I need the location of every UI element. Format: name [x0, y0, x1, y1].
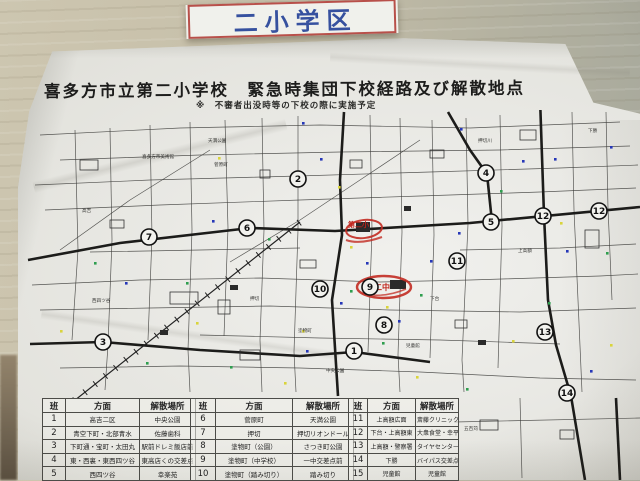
table-cell: 斎藤クリニック: [416, 413, 459, 427]
dismissal-table-groups-11-15: 班方面解散場所11上高額広面斎藤クリニック12下台・上高額東大衆食堂・幸平食堂1…: [348, 398, 459, 481]
table-cell: 児童館: [416, 467, 459, 481]
area-label: 塗物町: [298, 327, 312, 334]
table-header: 解散場所: [140, 399, 196, 413]
area-label: 下勝: [588, 127, 598, 134]
svg-text:1: 1: [351, 347, 357, 357]
area-label: 天満公園: [208, 137, 227, 144]
route-point-2: 2: [290, 171, 306, 187]
svg-text:7: 7: [146, 233, 152, 243]
table-header: 方面: [66, 399, 140, 413]
table-cell: 高吉二区: [66, 413, 140, 427]
route-point-10: 10: [312, 281, 328, 297]
table-cell: 下勝: [368, 453, 416, 467]
area-label: 押切: [250, 295, 260, 302]
svg-text:6: 6: [244, 224, 250, 234]
area-label: 五百苅: [464, 425, 478, 432]
route-point-8: 8: [376, 317, 392, 333]
area-label: 喜多方市美術館: [142, 153, 175, 160]
table-row: 2青空下町・北部青水佐藤歯科: [43, 426, 196, 440]
table-cell: 塗物町（踏み切り）: [216, 467, 293, 481]
table-cell: 13: [349, 440, 368, 454]
route-point-12: 12: [591, 203, 607, 219]
svg-text:14: 14: [561, 389, 574, 399]
svg-text:2: 2: [295, 175, 301, 185]
table-cell: 下町通・宝町・太田丸: [66, 440, 140, 454]
svg-text:12: 12: [537, 212, 550, 222]
route-point-12: 12: [535, 208, 551, 224]
route-point-6: 6: [239, 220, 255, 236]
school-red-label: 第二小: [348, 220, 369, 229]
table-cell: 下台・上高額東: [368, 426, 416, 440]
table-cell: 15: [349, 467, 368, 481]
table-cell: 9: [191, 453, 216, 467]
table-cell: 大衆食堂・幸平食堂: [416, 426, 459, 440]
route-point-1: 1: [346, 343, 362, 359]
table-row: 14下勝バイパス交差点: [349, 453, 459, 467]
table-cell: 6: [191, 413, 216, 427]
route-point-5: 5: [483, 214, 499, 230]
area-label: 中央公園: [326, 367, 345, 374]
table-cell: 児童館: [368, 467, 416, 481]
table-row: 4東・西裏・東西四ツ谷東高店くの交差点: [43, 453, 196, 467]
table-row: 11上高額広面斎藤クリニック: [349, 413, 459, 427]
area-label: 高吉: [82, 207, 92, 214]
table-cell: 7: [191, 426, 216, 440]
table-row: 8塗物町（公園）さつき町公園: [191, 440, 354, 454]
route-circles-group: 123456789101112121314: [95, 165, 607, 401]
route-point-9: 9: [362, 279, 378, 295]
table-cell: 押切: [216, 426, 293, 440]
table-cell: タイヤセンター: [416, 440, 459, 454]
area-label: 西四ツ谷: [92, 297, 111, 304]
table-cell: 上高額・警察署: [368, 440, 416, 454]
table-cell: 8: [191, 440, 216, 454]
area-label: 菅原町: [214, 161, 228, 168]
table-row: 9塗物町（中学校）一中交差点前: [191, 453, 354, 467]
table-cell: 東・西裏・東西四ツ谷: [66, 453, 140, 467]
table-cell: 天満公園: [293, 413, 354, 427]
table-cell: 菅原町: [216, 413, 293, 427]
route-point-13: 13: [537, 324, 553, 340]
table-row: 13上高額・警察署タイヤセンター: [349, 440, 459, 454]
table-row: 12下台・上高額東大衆食堂・幸平食堂: [349, 426, 459, 440]
table-row: 6菅原町天満公園: [191, 413, 354, 427]
table-cell: 一中交差点前: [293, 453, 354, 467]
area-label: 児童館: [406, 342, 420, 349]
table-header: 解散場所: [293, 399, 354, 413]
area-label: 押切川: [478, 137, 492, 144]
area-label: 上高額: [518, 247, 532, 254]
table-cell: 10: [191, 467, 216, 481]
route-point-11: 11: [449, 253, 465, 269]
table-cell: 2: [43, 426, 66, 440]
table-cell: さつき町公園: [293, 440, 354, 454]
area-label: 下台: [430, 295, 440, 302]
table-cell: 塗物町（中学校）: [216, 453, 293, 467]
table-cell: 塗物町（公園）: [216, 440, 293, 454]
svg-text:8: 8: [381, 321, 387, 331]
svg-text:11: 11: [451, 257, 464, 267]
table-header: 方面: [216, 399, 293, 413]
dismissal-table-groups-6-10: 班方面解散場所6菅原町天満公園7押切押切リオンドール8塗物町（公園）さつき町公園…: [190, 398, 354, 481]
table-cell: 12: [349, 426, 368, 440]
district-sign: 二小学区: [186, 0, 399, 39]
table-row: 15児童館児童館: [349, 467, 459, 481]
table-row: 10塗物町（踏み切り）踏み切り: [191, 467, 354, 481]
table-cell: 押切リオンドール: [293, 426, 354, 440]
table-cell: 4: [43, 453, 66, 467]
svg-text:12: 12: [593, 207, 606, 217]
table-header: 班: [43, 399, 66, 413]
table-cell: 東高店くの交差点: [140, 453, 196, 467]
route-point-7: 7: [141, 229, 157, 245]
table-cell: 佐藤歯科: [140, 426, 196, 440]
dismissal-table-groups-1-5: 班方面解散場所1高吉二区中央公園2青空下町・北部青水佐藤歯科3下町通・宝町・太田…: [42, 398, 196, 481]
table-cell: 幸楽苑: [140, 467, 196, 481]
route-point-3: 3: [95, 334, 111, 350]
table-header: 解散場所: [416, 399, 459, 413]
table-cell: 踏み切り: [293, 467, 354, 481]
svg-text:4: 4: [483, 169, 489, 179]
table-cell: 上高額広面: [368, 413, 416, 427]
table-header: 班: [191, 399, 216, 413]
district-sign-label: 二小学区: [188, 0, 397, 39]
table-cell: 西四ツ谷: [66, 467, 140, 481]
table-cell: 11: [349, 413, 368, 427]
table-header: 班: [349, 399, 368, 413]
table-row: 7押切押切リオンドール: [191, 426, 354, 440]
svg-text:9: 9: [367, 283, 373, 293]
table-cell: 中央公園: [140, 413, 196, 427]
table-cell: 駅前ドレミ飯店前: [140, 440, 196, 454]
svg-text:10: 10: [314, 285, 327, 295]
svg-text:3: 3: [100, 338, 106, 348]
table-cell: 青空下町・北部青水: [66, 426, 140, 440]
table-row: 1高吉二区中央公園: [43, 413, 196, 427]
route-point-14: 14: [559, 385, 575, 401]
table-row: 5西四ツ谷幸楽苑: [43, 467, 196, 481]
table-cell: 14: [349, 453, 368, 467]
table-cell: 1: [43, 413, 66, 427]
table-cell: 3: [43, 440, 66, 454]
table-header: 方面: [368, 399, 416, 413]
svg-text:5: 5: [488, 218, 494, 228]
table-cell: 5: [43, 467, 66, 481]
route-point-4: 4: [478, 165, 494, 181]
svg-text:13: 13: [539, 328, 552, 338]
table-row: 3下町通・宝町・太田丸駅前ドレミ飯店前: [43, 440, 196, 454]
table-cell: バイパス交差点: [416, 453, 459, 467]
